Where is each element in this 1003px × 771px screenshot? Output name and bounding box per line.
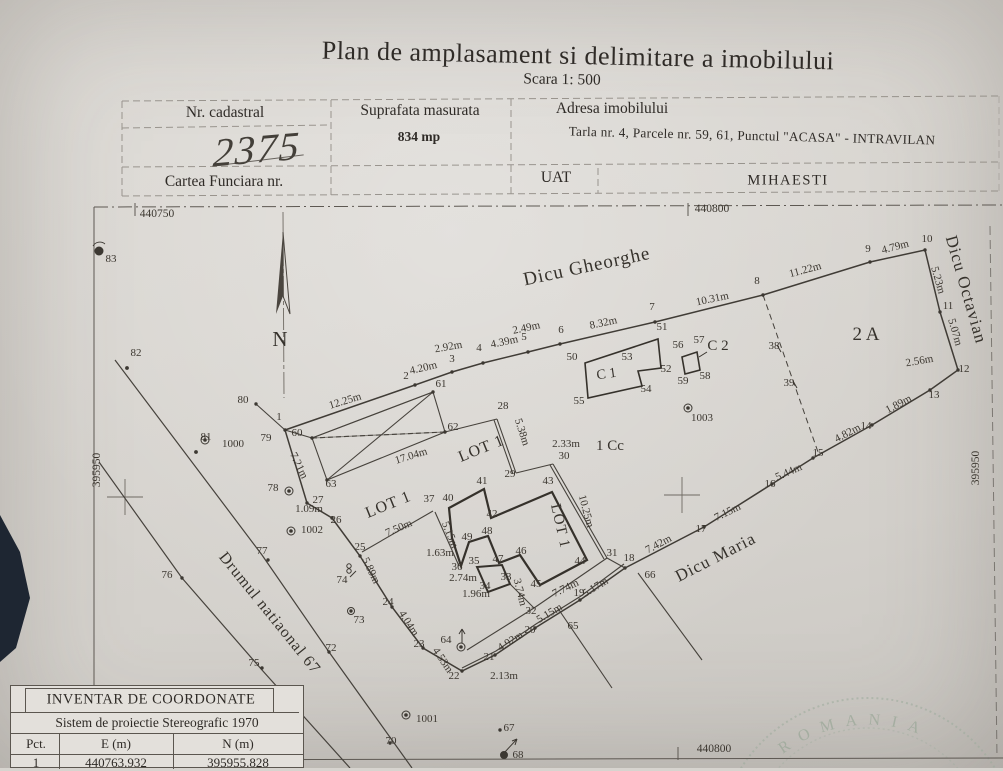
plan-grid-label: 440750 [140, 208, 175, 220]
coord-col-n: N (m) [222, 736, 253, 752]
plan-point-label: 66 [645, 569, 657, 581]
plan-point-label: 6 [558, 324, 564, 336]
plan-point-label: 1002 [301, 524, 323, 536]
scanned-document-page: ROMANIA [0, 0, 1003, 768]
plan-point-label: 45 [531, 578, 543, 590]
plan-point-label: 49 [462, 531, 474, 543]
plan-point-label: 9 [865, 243, 871, 255]
table-line [173, 733, 174, 769]
plan-point-label: 83 [106, 253, 118, 265]
plan-point-label: 73 [354, 614, 366, 626]
plan-point-label: 60 [292, 427, 304, 439]
plan-point-label: 41 [477, 475, 488, 487]
plan-point-label: 74 [337, 574, 349, 586]
cartea-funciara-label: Cartea Funciara nr. [165, 173, 283, 191]
plan-point-label: 29 [505, 468, 517, 480]
plan-measurement-label: 8.32m [589, 314, 619, 332]
plan-point-label: 56 [673, 339, 685, 351]
plan-point-label: 42 [487, 508, 498, 520]
plan-point-label: 22 [449, 670, 460, 682]
plan-point-label: 12 [959, 363, 970, 375]
station-1003-symbol [684, 404, 692, 412]
plan-measurement-label: 5.23m [928, 265, 947, 295]
plan-name-label: 1 Cc [596, 438, 624, 454]
plan-measurement-label: 4.92m [495, 629, 525, 654]
table-line [25, 688, 26, 712]
plan-point-label: 50 [567, 351, 579, 363]
station-1002-symbol [287, 527, 295, 535]
plan-point-label: 79 [261, 432, 273, 444]
plan-point-label: 70 [386, 735, 398, 747]
dashed-division-line [763, 295, 818, 452]
plan-point-label: 4 [476, 342, 482, 354]
plan-point-label: 64 [441, 634, 453, 646]
plan-point-label: 67 [504, 722, 516, 734]
plan-point-label: 77 [257, 545, 269, 557]
pole-symbol [347, 564, 351, 573]
plan-point-label: 33 [501, 571, 513, 583]
nr-cadastral-label: Nr. cadastral [186, 104, 264, 122]
plan-measurement-label: 1.63m [426, 547, 454, 559]
plan-measurement-label: 5.89m [359, 556, 382, 587]
plan-point-label: 10 [922, 233, 934, 245]
plan-point-label: 75 [249, 657, 261, 669]
plan-point-label: 1 [276, 411, 282, 423]
adresa-label: Adresa imobilului [556, 100, 668, 118]
plan-measurement-label: 10.25m [576, 494, 596, 530]
plan-point-label: 34 [480, 580, 492, 592]
point-78-symbol [285, 487, 293, 495]
plan-point-label: 8 [754, 275, 760, 287]
plan-measurement-label: 7.42m [643, 532, 674, 556]
plan-measurement-label: 7.21m [287, 451, 310, 482]
plan-name-label: C 1 [596, 366, 618, 384]
table-line [11, 733, 303, 734]
plan-point-label: 26 [331, 514, 343, 526]
plan-point-label: 17 [696, 523, 708, 535]
table-line [59, 733, 60, 769]
coord-table-subtitle: Sistem de proiectie Stereografic 1970 [55, 715, 258, 731]
plan-name-label: LOT 1 [547, 502, 573, 550]
plan-grid-label: 395950 [970, 451, 982, 486]
plan-point-label: 11 [943, 300, 954, 312]
plan-point-label: 58 [700, 370, 712, 382]
round-stamp: ROMANIA [718, 698, 1003, 768]
plan-point-label: 14 [861, 420, 873, 432]
plan-point-label: 19 [574, 587, 586, 599]
coord-row-e: 440763.932 [85, 755, 147, 771]
coordinate-inventory-table: INVENTAR DE COORDONATE Sistem de proiect… [10, 685, 304, 768]
plan-point-label: 24 [383, 596, 395, 608]
plan-point-label: 63 [326, 478, 338, 490]
plan-measurement-label: 3.74m [511, 577, 529, 607]
plan-point-label: 48 [482, 525, 494, 537]
plan-point-label: 59 [678, 375, 690, 387]
table-line [11, 712, 299, 713]
table-line [273, 688, 274, 712]
scale-label: Scara 1: 500 [523, 70, 601, 89]
plan-measurement-label: 2.13m [490, 670, 518, 682]
plan-point-label: 51 [657, 321, 668, 333]
plan-point-label: 61 [436, 378, 447, 390]
plan-measurement-label: 5.38m [512, 417, 532, 448]
plan-point-label: 15 [813, 447, 825, 459]
plan-name-label: C 2 [707, 338, 728, 354]
plan-measurement-label: 7.50m [384, 517, 415, 539]
plan-point-label: 16 [765, 478, 777, 490]
plan-point-label: 78 [268, 482, 280, 494]
plan-point-label: 54 [641, 383, 653, 395]
plan-name-label: Drumul natiaonal 67 [215, 549, 324, 677]
plan-name-label: LOT 1 [456, 432, 507, 466]
plan-measurement-label: 17.04m [393, 445, 429, 466]
plan-point-label: 44 [575, 555, 587, 567]
plan-point-label: 5 [521, 331, 527, 343]
uat-label: UAT [541, 169, 571, 187]
station-1001-symbol [402, 711, 410, 719]
suprafata-value: 834 mp [398, 129, 440, 145]
plan-measurement-label: 5.44m [774, 461, 805, 483]
plan-point-label: 57 [694, 334, 706, 346]
plan-point-label: 68 [513, 749, 525, 761]
plan-measurement-label: 1.89m [883, 392, 914, 416]
plan-point-label: 82 [131, 347, 142, 359]
north-arrow [276, 212, 290, 398]
nr-cadastral-value: 2375 [212, 121, 302, 176]
photo-shadow-corner [0, 515, 30, 662]
plan-point-label: 43 [543, 475, 555, 487]
plan-point-label: 40 [443, 492, 455, 504]
coord-col-e: E (m) [101, 736, 131, 752]
uat-value: MIHAESTI [747, 173, 828, 190]
plan-name-label: LOT 1 [363, 488, 414, 522]
plan-point-label: 47 [493, 553, 505, 565]
plan-point-label: 1001 [416, 713, 438, 725]
plan-point-label: 39 [784, 377, 796, 389]
table-line [25, 688, 273, 689]
plan-point-label: 23 [414, 638, 426, 650]
plan-point-label: 32 [526, 605, 537, 617]
plan-point-label: 21 [484, 651, 495, 663]
plan-measurement-label: 4.04m [396, 608, 421, 638]
plan-measurement-label: 11.22m [788, 260, 823, 280]
plan-point-label: 62 [448, 421, 459, 433]
plan-point-label: 37 [424, 493, 436, 505]
plan-grid-label: 395950 [91, 453, 103, 488]
plan-point-label: 55 [574, 395, 586, 407]
plan-measurement-label: 2.56m [905, 353, 935, 370]
plan-point-label: 25 [355, 541, 367, 553]
plan-point-label: 81 [201, 431, 212, 443]
plan-measurement-label: 5.15m [439, 520, 461, 551]
plan-point-label: 18 [624, 552, 636, 564]
plan-point-label: 1000 [222, 438, 245, 450]
coord-row-n: 395955.828 [207, 755, 269, 771]
plan-point-label: 76 [162, 569, 174, 581]
plan-point-label: 7 [649, 301, 655, 313]
plan-name-label: 2 A [853, 324, 880, 345]
plan-measurement-label: 7.15m [713, 501, 744, 524]
plan-name-label: Dicu Gheorghe [521, 243, 652, 290]
plan-measurement-label: 5.07m [945, 317, 964, 347]
plan-measurement-label: 5.17m [580, 575, 610, 600]
plan-point-label: 30 [559, 450, 571, 462]
plan-measurement-label: 4.82m [832, 421, 863, 445]
plan-measurement-label: 4.20m [408, 359, 438, 377]
plan-point-label: 28 [498, 400, 510, 412]
plan-point-label: 46 [516, 545, 528, 557]
plan-point-label: 65 [568, 620, 580, 632]
plan-point-label: 36 [452, 561, 464, 573]
plan-point-label: 35 [469, 555, 481, 567]
plan-point-label: 13 [929, 389, 941, 401]
plan-name-label: N [272, 327, 287, 351]
plan-measurement-label: 2.74m [449, 572, 477, 584]
coord-table-title: INVENTAR DE COORDONATE [47, 692, 256, 709]
plan-point-label: 38 [769, 340, 781, 352]
plan-measurement-label: 2.33m [552, 438, 580, 450]
coord-col-pct: Pct. [26, 736, 46, 752]
plan-grid-label: 440800 [697, 743, 732, 755]
plan-point-label: 52 [661, 363, 672, 375]
point-64-symbol [457, 629, 465, 651]
coord-row-pct: 1 [33, 755, 40, 771]
plan-point-label: 80 [238, 394, 250, 406]
site-plan-drawing: ROMANIA [0, 0, 1003, 768]
plan-measurement-label: 10.31m [695, 290, 731, 309]
plan-point-label: 2 [403, 370, 409, 382]
suprafata-label: Suprafata masurata [360, 102, 479, 120]
plan-point-label: 27 [313, 494, 325, 506]
plan-point-label: 53 [622, 351, 634, 363]
plan-grid-label: 440800 [695, 203, 730, 215]
plan-point-label: 72 [326, 642, 337, 654]
plan-point-label: 3 [449, 353, 455, 365]
building-c2 [682, 352, 700, 374]
plan-point-label: 1003 [691, 412, 714, 424]
plan-point-label: 31 [607, 547, 618, 559]
point-83-symbol [93, 242, 105, 255]
plan-point-label: 20 [525, 624, 537, 636]
